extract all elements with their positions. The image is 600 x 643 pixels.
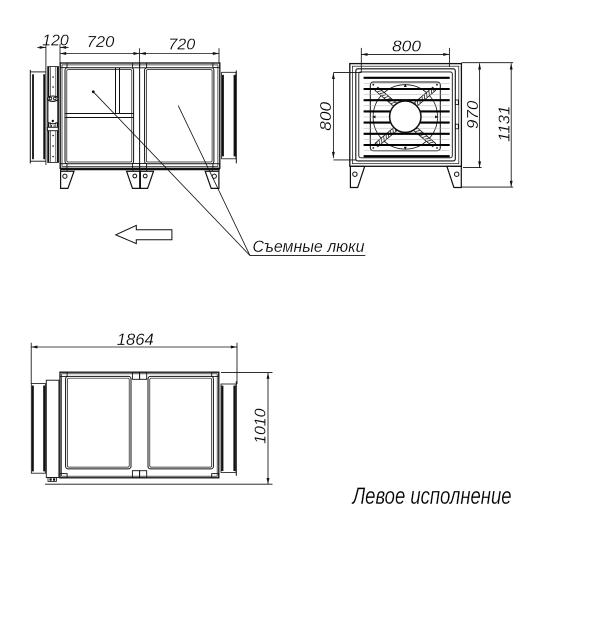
svg-text:120: 120 <box>42 32 69 49</box>
svg-text:800: 800 <box>318 101 335 130</box>
svg-text:1864: 1864 <box>117 331 154 349</box>
svg-text:1131: 1131 <box>496 106 513 142</box>
svg-text:1010: 1010 <box>252 408 269 444</box>
svg-text:Левое исполнение: Левое исполнение <box>351 483 512 510</box>
svg-text:720: 720 <box>168 37 195 54</box>
svg-text:970: 970 <box>465 100 482 129</box>
svg-text:800: 800 <box>392 39 421 56</box>
svg-text:720: 720 <box>87 34 115 51</box>
svg-text:Съемные люки: Съемные люки <box>253 237 366 256</box>
